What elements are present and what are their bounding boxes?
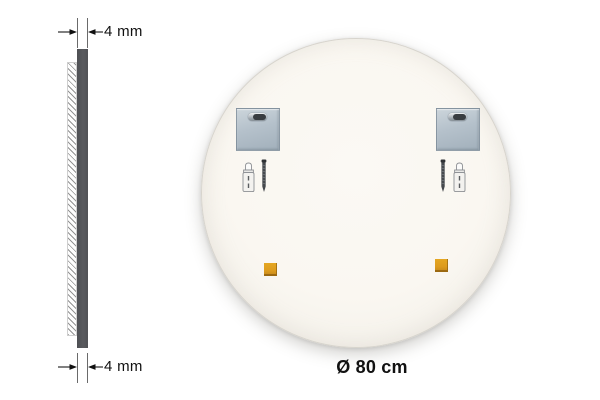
thickness-label-bottom: 4 mm bbox=[104, 359, 164, 375]
keyhole-slot-icon bbox=[448, 113, 467, 121]
product-image: 4 mm 4 mm bbox=[0, 0, 600, 400]
screw-icon bbox=[439, 159, 447, 193]
keyhole-hole bbox=[253, 114, 266, 120]
mounting-bracket-left bbox=[236, 108, 280, 151]
keyhole-hole bbox=[453, 114, 466, 120]
keyhole-slot-icon bbox=[248, 113, 267, 121]
adhesive-pad-right bbox=[435, 259, 448, 272]
diameter-label: Ø 80 cm bbox=[302, 357, 442, 378]
backing-hatch bbox=[68, 63, 76, 335]
wall-anchor-icon bbox=[453, 162, 466, 193]
wall-anchor-icon bbox=[242, 162, 255, 193]
dimension-arrows-top-icon bbox=[43, 12, 113, 52]
screw-icon bbox=[260, 159, 268, 193]
mounting-bracket-right bbox=[436, 108, 480, 151]
adhesive-pad-left bbox=[264, 263, 277, 276]
thickness-label-top: 4 mm bbox=[104, 24, 164, 40]
mirror-back-panel bbox=[201, 38, 511, 348]
dimension-arrows-bottom-icon bbox=[43, 347, 113, 387]
glass-edge-bar bbox=[77, 49, 88, 348]
